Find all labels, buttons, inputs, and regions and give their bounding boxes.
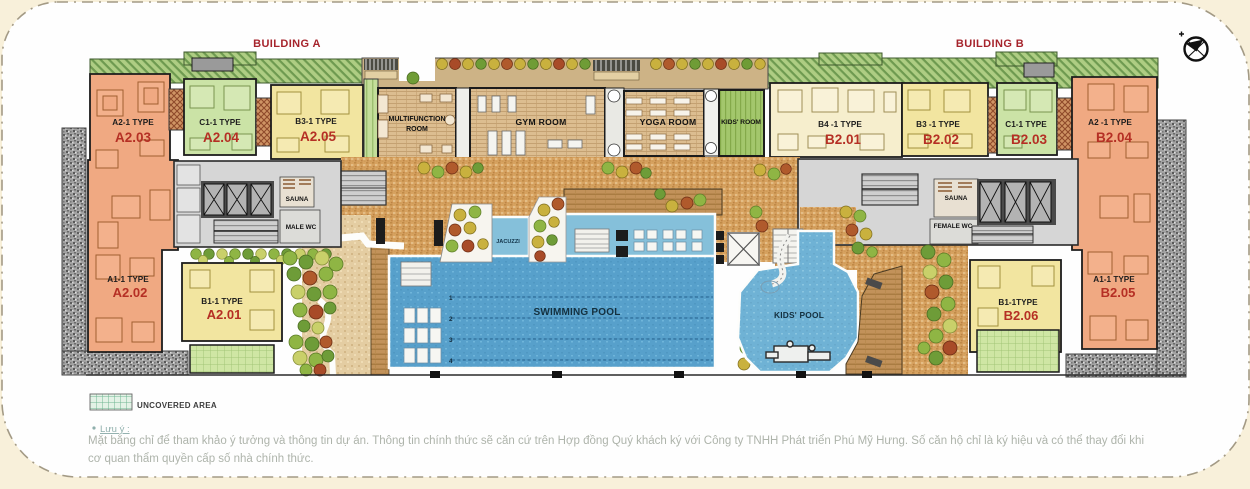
svg-text:B1-1TYPE: B1-1TYPE [998,298,1038,307]
svg-text:FEMALE WC: FEMALE WC [934,223,973,230]
svg-text:MULTIFUNCTION: MULTIFUNCTION [388,116,445,123]
svg-text:cơ quan thẩm quyền cấp số nhà: cơ quan thẩm quyền cấp số nhà chính th… [88,453,314,465]
svg-text:B2.05: B2.05 [1101,285,1136,300]
svg-text:UNCOVERED AREA: UNCOVERED AREA [137,401,217,410]
svg-text:C1-1 TYPE: C1-1 TYPE [199,118,241,127]
svg-text:B3 -1 TYPE: B3 -1 TYPE [916,120,960,129]
svg-text:JACUZZI: JACUZZI [496,239,520,245]
svg-text:YOGA ROOM: YOGA ROOM [640,117,697,127]
svg-text:A1-1 TYPE: A1-1 TYPE [1093,275,1135,284]
svg-text:A2.05: A2.05 [300,129,337,144]
svg-text:B2.02: B2.02 [923,132,959,147]
svg-text:A2-1 TYPE: A2-1 TYPE [112,118,154,127]
svg-text:A1-1 TYPE: A1-1 TYPE [107,275,149,284]
svg-text:B2.01: B2.01 [825,132,862,147]
svg-text:SAUNA: SAUNA [945,195,968,202]
svg-text:ROOM: ROOM [406,126,428,133]
svg-text:B1-1 TYPE: B1-1 TYPE [201,297,243,306]
svg-text:A2.03: A2.03 [115,130,152,145]
svg-text:KIDS' ROOM: KIDS' ROOM [721,119,761,126]
svg-text:KIDS' POOL: KIDS' POOL [774,310,824,320]
svg-text:2: 2 [449,316,453,323]
svg-text:1: 1 [449,295,453,302]
svg-text:MALE WC: MALE WC [286,224,317,231]
svg-text:B2.06: B2.06 [1004,308,1039,323]
svg-text:B2.03: B2.03 [1011,132,1048,147]
svg-text:A2.04: A2.04 [203,130,240,145]
svg-text:GYM ROOM: GYM ROOM [515,117,566,127]
svg-text:3: 3 [449,337,453,344]
svg-text:Lưu ý :: Lưu ý : [100,424,130,435]
svg-text:A2 -1 TYPE: A2 -1 TYPE [1088,118,1132,127]
svg-text:A2.01: A2.01 [207,307,242,322]
svg-text:B4 -1 TYPE: B4 -1 TYPE [818,120,862,129]
svg-text:SAUNA: SAUNA [286,196,309,203]
svg-text:BUILDING A: BUILDING A [253,38,321,50]
svg-text:B2.04: B2.04 [1096,130,1133,145]
svg-text:C1-1 TYPE: C1-1 TYPE [1005,120,1047,129]
svg-text:A2.02: A2.02 [113,285,148,300]
svg-text:Mặt bằng chỉ để tham khảo ý t: Mặt bằng chỉ để tham khảo ý tưởng và t… [88,434,1144,447]
svg-text:BUILDING B: BUILDING B [956,38,1024,50]
svg-text:4: 4 [449,358,453,365]
svg-text:B3-1 TYPE: B3-1 TYPE [295,117,337,126]
svg-text:SWIMMING POOL: SWIMMING POOL [533,307,620,318]
